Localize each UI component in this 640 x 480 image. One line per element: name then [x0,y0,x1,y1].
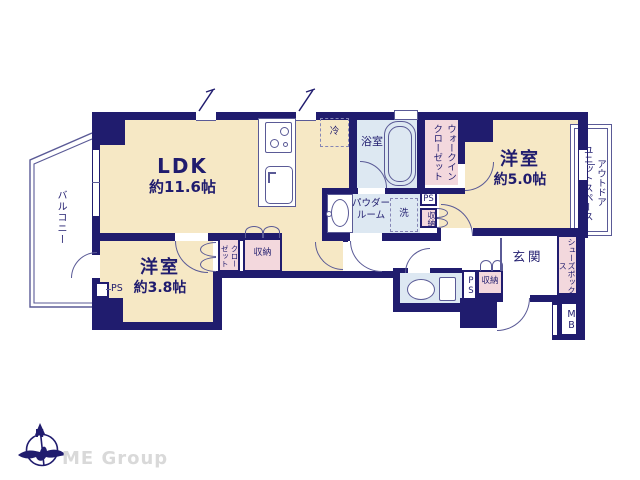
bedroom38-label: 洋室 [118,258,202,278]
pipe-space-bedroom38-label: PS [111,284,133,294]
balcony-label: バルコニー [50,187,66,247]
wall-segment [92,112,100,150]
wic-door-gap [458,164,465,188]
wall-segment [578,235,585,295]
vent-icon [299,89,315,111]
toilet-tank [439,277,456,301]
storage-entrance-label: 収納 [477,277,503,286]
sink-faucet [268,172,276,174]
door-arc-balcony [71,252,97,278]
door-arc-toilet [405,248,430,273]
folding-door-storage-entrance [492,260,503,271]
vent-gap [296,112,316,121]
wall-segment [213,271,400,278]
pipe-space-hall-label: PS [420,195,437,204]
folding-door-storage-ldk [245,226,263,238]
storage-hall-label: 収納 [422,209,435,228]
wall-segment [92,233,175,241]
wall-segment [417,112,425,188]
meter-box-label: MB [563,306,576,334]
folding-door-storage-ldk [263,226,280,238]
outdoor-label-col1: アウトドア [594,132,607,234]
stove-burner [270,139,279,148]
wic-label-col2: クローゼット [429,120,443,184]
compass-icon: N [18,423,66,466]
vent-icon [199,89,215,111]
bath-window [394,110,418,120]
wall-segment [92,322,222,330]
wall-segment [460,298,497,328]
closet-bedroom38-label: クロー ゼット [219,241,239,271]
outdoor-label-col2: ユニットスペース [580,132,593,234]
refrigerator-label: 冷 [320,127,349,137]
bedroom5-label: 洋室 [478,150,562,170]
compass-north-label: N [35,427,44,440]
wall-segment [92,298,123,323]
wall-segment [322,233,350,241]
shoe-box-label: シューズボックス [561,237,575,294]
vent-gap [196,112,216,121]
vanity-basin [331,199,349,227]
wall-segment [349,112,357,194]
vanity-knob [326,211,332,217]
stove [265,122,292,153]
wall-segment [458,188,465,194]
door-arc-powder [350,241,382,272]
closet-label-col2: ゼット [220,241,230,271]
wall-segment [458,142,465,164]
bath-door-gap [358,188,385,194]
storage-ldk-label: 収納 [243,249,282,259]
wall-segment [530,295,552,302]
wall-segment [393,303,462,312]
logo-text: ME Group [62,449,202,469]
ldk-area-label: 約11.6帖 [130,179,235,196]
wic-label-col1: ウォークイン [443,120,457,184]
bedroom5-area-label: 約5.0帖 [478,173,562,188]
washer-label: 洗 [390,209,418,219]
powder-room-label-line2: ルーム [349,211,393,221]
closet-label-col1: クロー [229,241,239,271]
walk-in-closet-label: ウォークイン クローゼット [427,120,457,184]
powder-room-label-line1: パウダー [349,199,393,209]
toilet-bowl [407,279,435,300]
wall-segment [430,268,462,273]
stove-burner [280,127,289,136]
outdoor-unit-space-label: アウトドア ユニットスペース [579,132,607,234]
bathroom-label: 浴室 [356,136,388,148]
pipe-space-toilet-label: PS [465,274,475,298]
meter-box-strip [553,305,557,335]
floorplan-canvas: N [0,0,640,480]
wall-segment [382,233,440,241]
window-mullion [92,182,100,183]
ldk-label: LDK [130,155,235,177]
entrance-label: 玄関 [504,250,552,264]
stove-burner [283,142,288,147]
bathtub-inner [388,126,412,182]
door-arc-front-door [497,298,530,331]
wall-segment [458,112,493,142]
wall-segment [213,271,222,330]
folding-door-storage-entrance [480,260,492,271]
